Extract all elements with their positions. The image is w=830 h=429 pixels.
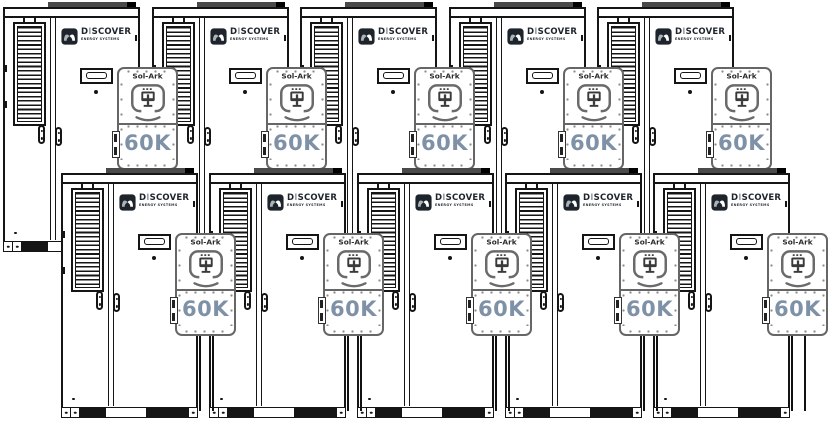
door-handle <box>557 293 564 312</box>
inverter: Sol-Ark 60K <box>711 67 772 170</box>
display-button <box>744 256 748 260</box>
inverter-display-icon <box>185 248 227 290</box>
brand-name-part: SCOVER <box>594 193 634 203</box>
inverter-display-icon <box>481 248 523 290</box>
screw-column <box>766 77 769 160</box>
inverter-model-label: 60K <box>325 297 382 321</box>
leveling-foot <box>780 408 789 417</box>
leveling-foot <box>484 408 493 417</box>
inverter-display-icon <box>333 248 375 290</box>
hinge-mark <box>3 65 7 72</box>
inverter-brand-wordmark: Sol-Ark <box>718 73 765 81</box>
brand-text: DISCOVER ENERGY SYSTEMS <box>731 194 811 211</box>
screw-column <box>172 77 175 160</box>
conduit-pipe <box>508 336 510 411</box>
door-handle <box>261 293 268 312</box>
screw-row <box>626 330 673 333</box>
vent-cap <box>81 182 94 190</box>
screw-row <box>124 164 171 167</box>
brand-subtitle: ENERGY SYSTEMS <box>139 203 220 207</box>
discover-logo: DISCOVER ENERGY SYSTEMS <box>655 28 755 45</box>
screw-row <box>273 125 320 128</box>
inverter-model-label: 60K <box>565 131 622 155</box>
inverter-display-icon <box>721 82 763 124</box>
inverter-display-icon <box>424 82 466 124</box>
door-seam <box>552 183 553 406</box>
screw-column <box>469 77 472 160</box>
inverter-model-label: 60K <box>119 131 176 155</box>
door-handle <box>540 291 547 310</box>
conduit-pipe <box>199 336 201 411</box>
brand-subtitle: ENERGY SYSTEMS <box>527 37 608 41</box>
door-handle <box>409 293 416 312</box>
inverter: Sol-Ark 60K <box>266 67 327 170</box>
display-window <box>440 238 461 245</box>
screw-column <box>770 243 773 326</box>
inverter-display-icon <box>777 248 819 290</box>
screw-row <box>718 125 765 128</box>
inverter: Sol-Ark 60K <box>471 233 532 336</box>
display-button <box>448 256 452 260</box>
screw-row <box>182 291 229 294</box>
inverter: Sol-Ark 60K <box>767 233 828 336</box>
brand-subtitle: ENERGY SYSTEMS <box>230 37 311 41</box>
screw-column <box>326 243 329 326</box>
anchor-dot <box>72 398 75 401</box>
screw-column <box>321 77 324 160</box>
vent-cap <box>23 16 36 24</box>
base-segment <box>296 408 336 417</box>
inverter-model-label: 60K <box>416 131 473 155</box>
brand-name-part: SCOVER <box>389 27 429 37</box>
screw-column <box>674 243 677 326</box>
door-seam <box>404 183 405 406</box>
leveling-foot <box>336 408 345 417</box>
base-segment <box>444 408 484 417</box>
screw-row <box>718 164 765 167</box>
discover-logo-icon <box>655 28 672 45</box>
anchor-dot <box>14 232 17 235</box>
inverter-display-icon <box>573 82 615 124</box>
base-segment <box>550 408 592 417</box>
display-panel <box>582 234 615 250</box>
display-window <box>235 72 256 79</box>
leveling-foot <box>13 242 22 251</box>
conduit-pipe <box>495 336 497 411</box>
brand-subtitle: ENERGY SYSTEMS <box>378 37 459 41</box>
screw-row <box>182 330 229 333</box>
display-window <box>86 72 107 79</box>
discover-logo: DISCOVER ENERGY SYSTEMS <box>267 194 367 211</box>
dc-disconnect <box>112 131 120 158</box>
discover-logo: DISCOVER ENERGY SYSTEMS <box>210 28 310 45</box>
door-seam <box>256 183 257 406</box>
display-button <box>94 90 98 94</box>
vent-grille <box>71 188 104 292</box>
display-button <box>596 256 600 260</box>
display-panel <box>526 68 559 84</box>
brand-name: DISCOVER <box>583 194 663 203</box>
brand-name: DISCOVER <box>378 28 458 37</box>
inverter-brand-wordmark: Sol-Ark <box>273 73 320 81</box>
brand-text: DISCOVER ENERGY SYSTEMS <box>378 28 458 45</box>
door-handle <box>96 291 103 310</box>
display-panel <box>80 68 113 84</box>
leveling-foot <box>188 408 197 417</box>
door-seam <box>700 183 701 406</box>
brand-text: DISCOVER ENERGY SYSTEMS <box>675 28 755 45</box>
inverter-brand-wordmark: Sol-Ark <box>124 73 171 81</box>
inverter-brand-wordmark: Sol-Ark <box>478 239 525 247</box>
screw-column <box>526 243 529 326</box>
screw-row <box>421 125 468 128</box>
inverter-model-label: 60K <box>621 297 678 321</box>
inverter-model-label: 60K <box>177 297 234 321</box>
inverter-model-label: 60K <box>769 297 826 321</box>
screw-row <box>774 330 821 333</box>
screw-row <box>421 164 468 167</box>
discover-logo: DISCOVER ENERGY SYSTEMS <box>415 194 515 211</box>
door-handle <box>113 293 120 312</box>
screw-row <box>478 330 525 333</box>
screw-row <box>273 164 320 167</box>
display-button <box>243 90 247 94</box>
inverter: Sol-Ark 60K <box>175 233 236 336</box>
brand-name: DISCOVER <box>435 194 515 203</box>
brand-name-part: SCOVER <box>538 27 578 37</box>
base-segment <box>740 408 780 417</box>
screw-row <box>330 291 377 294</box>
screw-row <box>478 291 525 294</box>
discover-logo-icon <box>267 194 284 211</box>
dc-disconnect <box>170 297 178 324</box>
inverter-brand-wordmark: Sol-Ark <box>570 73 617 81</box>
conduit-pipe <box>791 336 793 411</box>
display-window <box>383 72 404 79</box>
base-segment <box>148 408 188 417</box>
storage-unit-6: DISCOVER ENERGY SYSTEMS Sol-Ark <box>61 173 237 418</box>
screw-column <box>230 243 233 326</box>
leveling-foot <box>632 408 641 417</box>
discover-logo-icon <box>507 28 524 45</box>
screw-row <box>330 330 377 333</box>
discover-logo-icon <box>61 28 78 45</box>
discover-logo: DISCOVER ENERGY SYSTEMS <box>119 194 219 211</box>
display-button <box>300 256 304 260</box>
brand-name-part: SCOVER <box>92 27 132 37</box>
dc-disconnect <box>318 297 326 324</box>
door-handle <box>688 291 695 310</box>
inverter-display-icon <box>629 248 671 290</box>
conduit-pipe <box>347 336 349 411</box>
dc-disconnect <box>261 131 269 158</box>
brand-text: DISCOVER ENERGY SYSTEMS <box>583 194 663 211</box>
discover-logo: DISCOVER ENERGY SYSTEMS <box>563 194 663 211</box>
inverter: Sol-Ark 60K <box>619 233 680 336</box>
door-seam <box>50 17 51 240</box>
door-handle <box>649 127 656 146</box>
brand-text: DISCOVER ENERGY SYSTEMS <box>527 28 607 45</box>
conduit-pipe <box>360 336 362 411</box>
discover-logo-icon <box>711 194 728 211</box>
brand-subtitle: ENERGY SYSTEMS <box>583 203 664 207</box>
display-panel <box>229 68 262 84</box>
brand-subtitle: ENERGY SYSTEMS <box>81 37 162 41</box>
screw-column <box>822 243 825 326</box>
door-handle <box>244 291 251 310</box>
dc-disconnect <box>762 297 770 324</box>
screw-column <box>269 77 272 160</box>
screw-row <box>774 291 821 294</box>
display-window <box>588 238 609 245</box>
display-panel <box>377 68 410 84</box>
brand-subtitle: ENERGY SYSTEMS <box>287 203 368 207</box>
display-button <box>152 256 156 260</box>
display-button <box>391 90 395 94</box>
inverter: Sol-Ark 60K <box>414 67 475 170</box>
brand-name: DISCOVER <box>81 28 161 37</box>
inverter: Sol-Ark 60K <box>563 67 624 170</box>
brand-subtitle: ENERGY SYSTEMS <box>675 37 756 41</box>
door-handle <box>705 293 712 312</box>
base-segment <box>80 408 106 417</box>
screw-row <box>124 125 171 128</box>
hinge-mark <box>61 267 65 274</box>
display-window <box>532 72 553 79</box>
brand-name: DISCOVER <box>675 28 755 37</box>
base-segment <box>402 408 444 417</box>
brand-subtitle: ENERGY SYSTEMS <box>435 203 516 207</box>
inverter-display-icon <box>276 82 318 124</box>
display-panel <box>730 234 763 250</box>
brand-text: DISCOVER ENERGY SYSTEMS <box>230 28 310 45</box>
discover-logo-icon <box>563 194 580 211</box>
inverter-brand-wordmark: Sol-Ark <box>774 239 821 247</box>
dc-disconnect <box>558 131 566 158</box>
display-window <box>144 238 165 245</box>
conduit-pipe <box>656 336 658 411</box>
cabinet-base <box>61 407 198 418</box>
screw-row <box>570 164 617 167</box>
display-panel <box>286 234 319 250</box>
inverter-model-label: 60K <box>268 131 325 155</box>
door-handle <box>38 125 45 144</box>
door-handle <box>335 125 342 144</box>
grille-louvers <box>17 26 42 122</box>
leveling-foot <box>71 408 80 417</box>
door-handle <box>392 291 399 310</box>
inverter-brand-wordmark: Sol-Ark <box>182 239 229 247</box>
brand-subtitle: ENERGY SYSTEMS <box>731 203 812 207</box>
brand-name: DISCOVER <box>139 194 219 203</box>
dc-disconnect <box>706 131 714 158</box>
display-button <box>540 90 544 94</box>
inverter-brand-wordmark: Sol-Ark <box>330 239 377 247</box>
brand-name-part: SCOVER <box>742 193 782 203</box>
brand-name-part: SCOVER <box>298 193 338 203</box>
hinge-mark <box>3 101 7 108</box>
display-window <box>292 238 313 245</box>
discover-logo-icon <box>210 28 227 45</box>
discover-logo: DISCOVER ENERGY SYSTEMS <box>507 28 607 45</box>
brand-text: DISCOVER ENERGY SYSTEMS <box>139 194 219 211</box>
base-segment <box>698 408 740 417</box>
grille-louvers <box>75 192 100 288</box>
screw-column <box>618 77 621 160</box>
discover-logo-icon <box>415 194 432 211</box>
display-window <box>736 238 757 245</box>
leveling-foot <box>4 242 13 251</box>
door-seam <box>108 183 109 406</box>
base-segment <box>106 408 148 417</box>
screw-column <box>474 243 477 326</box>
display-button <box>688 90 692 94</box>
leveling-foot <box>62 408 71 417</box>
door-handle <box>632 125 639 144</box>
conduit-pipe <box>212 336 214 411</box>
screw-column <box>417 77 420 160</box>
screw-column <box>714 77 717 160</box>
door-handle <box>501 127 508 146</box>
door-handle <box>352 127 359 146</box>
discover-logo: DISCOVER ENERGY SYSTEMS <box>711 194 811 211</box>
inverter-display-icon <box>127 82 169 124</box>
brand-name: DISCOVER <box>527 28 607 37</box>
discover-logo: DISCOVER ENERGY SYSTEMS <box>61 28 161 45</box>
brand-name-part: SCOVER <box>446 193 486 203</box>
vent-grille <box>13 22 46 126</box>
display-panel <box>434 234 467 250</box>
inverter: Sol-Ark 60K <box>117 67 178 170</box>
screw-column <box>120 77 123 160</box>
discover-logo-icon <box>358 28 375 45</box>
door-handle <box>187 125 194 144</box>
discover-logo-icon <box>119 194 136 211</box>
brand-text: DISCOVER ENERGY SYSTEMS <box>287 194 367 211</box>
hinge-mark <box>61 231 65 238</box>
brand-text: DISCOVER ENERGY SYSTEMS <box>435 194 515 211</box>
inverter-brand-wordmark: Sol-Ark <box>421 73 468 81</box>
screw-column <box>566 77 569 160</box>
screw-row <box>570 125 617 128</box>
dc-disconnect <box>614 297 622 324</box>
equipment-lineup-illustration: DISCOVER ENERGY SYSTEMS Sol-Ark <box>0 0 830 429</box>
brand-name-part: SCOVER <box>686 27 726 37</box>
dc-disconnect <box>466 297 474 324</box>
screw-column <box>178 243 181 326</box>
inverter-brand-wordmark: Sol-Ark <box>626 239 673 247</box>
brand-name-part: SCOVER <box>241 27 281 37</box>
brand-text: DISCOVER ENERGY SYSTEMS <box>81 28 161 45</box>
conduit-pipe <box>643 336 645 411</box>
brand-name: DISCOVER <box>731 194 811 203</box>
door-handle <box>484 125 491 144</box>
inverter-model-label: 60K <box>473 297 530 321</box>
conduit-pipe <box>804 336 806 411</box>
screw-row <box>626 291 673 294</box>
brand-name: DISCOVER <box>230 28 310 37</box>
door-handle <box>55 127 62 146</box>
discover-logo: DISCOVER ENERGY SYSTEMS <box>358 28 458 45</box>
inverter-model-label: 60K <box>713 131 770 155</box>
brand-name-part: SCOVER <box>150 193 190 203</box>
display-panel <box>138 234 171 250</box>
door-handle <box>204 127 211 146</box>
inverter: Sol-Ark 60K <box>323 233 384 336</box>
dc-disconnect <box>409 131 417 158</box>
brand-name: DISCOVER <box>287 194 367 203</box>
base-segment <box>592 408 632 417</box>
base-segment <box>22 242 48 251</box>
screw-column <box>378 243 381 326</box>
display-window <box>680 72 701 79</box>
display-panel <box>674 68 707 84</box>
screw-column <box>622 243 625 326</box>
base-segment <box>254 408 296 417</box>
